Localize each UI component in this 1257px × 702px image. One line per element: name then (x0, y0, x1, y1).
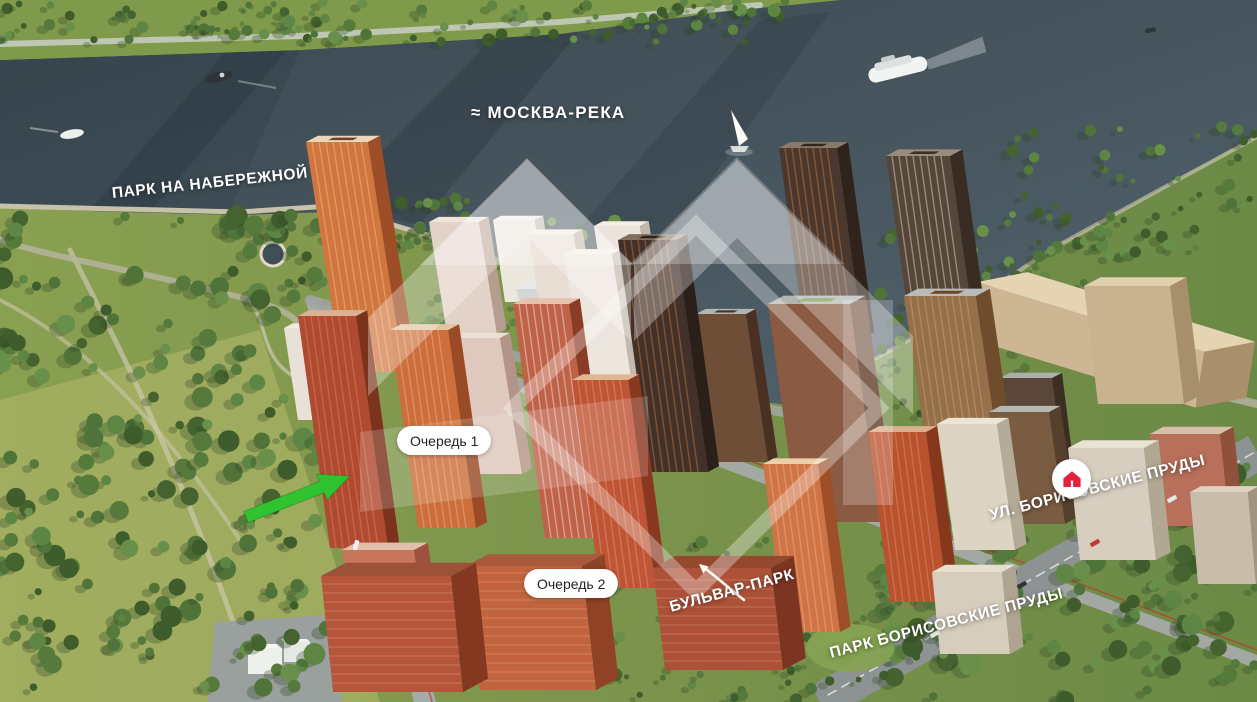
masterplan-canvas: ≈ МОСКВА-РЕКА ПАРК НА НАБЕРЕЖНОЙ Очередь… (0, 0, 1257, 702)
phase-1-text: Очередь 1 (410, 433, 478, 449)
location-marker[interactable] (1052, 459, 1091, 498)
river-label-text: ≈ МОСКВА-РЕКА (471, 103, 625, 122)
annotation-overlay (0, 0, 1257, 702)
phase-2-text: Очередь 2 (537, 576, 605, 592)
river-label: ≈ МОСКВА-РЕКА (471, 104, 625, 121)
phase-2-badge[interactable]: Очередь 2 (524, 569, 618, 598)
phase-1-badge[interactable]: Очередь 1 (397, 426, 491, 455)
home-icon (1061, 468, 1083, 490)
green-arrow (244, 474, 350, 523)
